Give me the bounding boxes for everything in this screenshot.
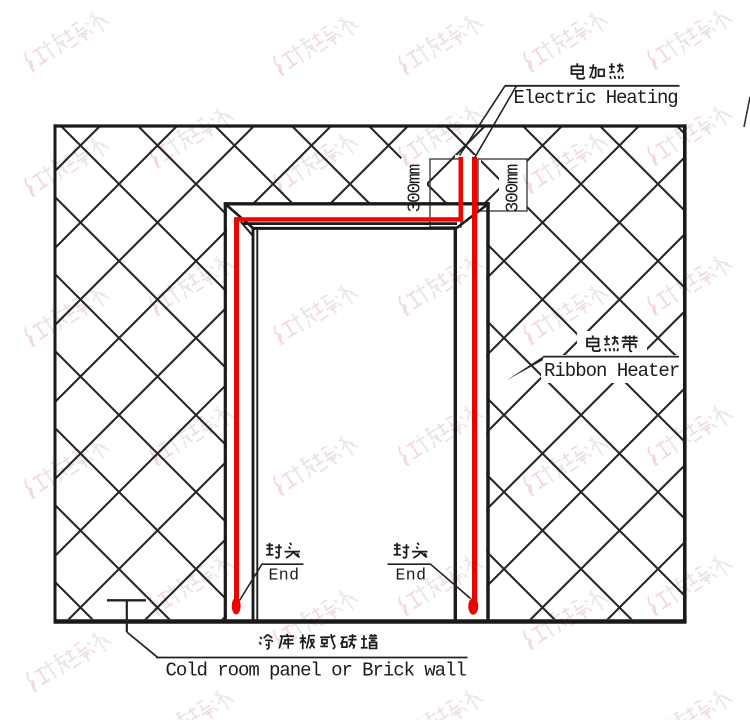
svg-text:Cold room panel or Brick wall: Cold room panel or Brick wall xyxy=(166,660,467,682)
svg-text:Ribbon Heater: Ribbon Heater xyxy=(544,360,679,382)
svg-text:End: End xyxy=(396,565,427,584)
svg-text:Electric Heating: Electric Heating xyxy=(514,87,678,109)
svg-text:End: End xyxy=(269,565,300,584)
svg-text:300mm: 300mm xyxy=(406,164,426,212)
svg-text:300mm: 300mm xyxy=(504,164,524,212)
